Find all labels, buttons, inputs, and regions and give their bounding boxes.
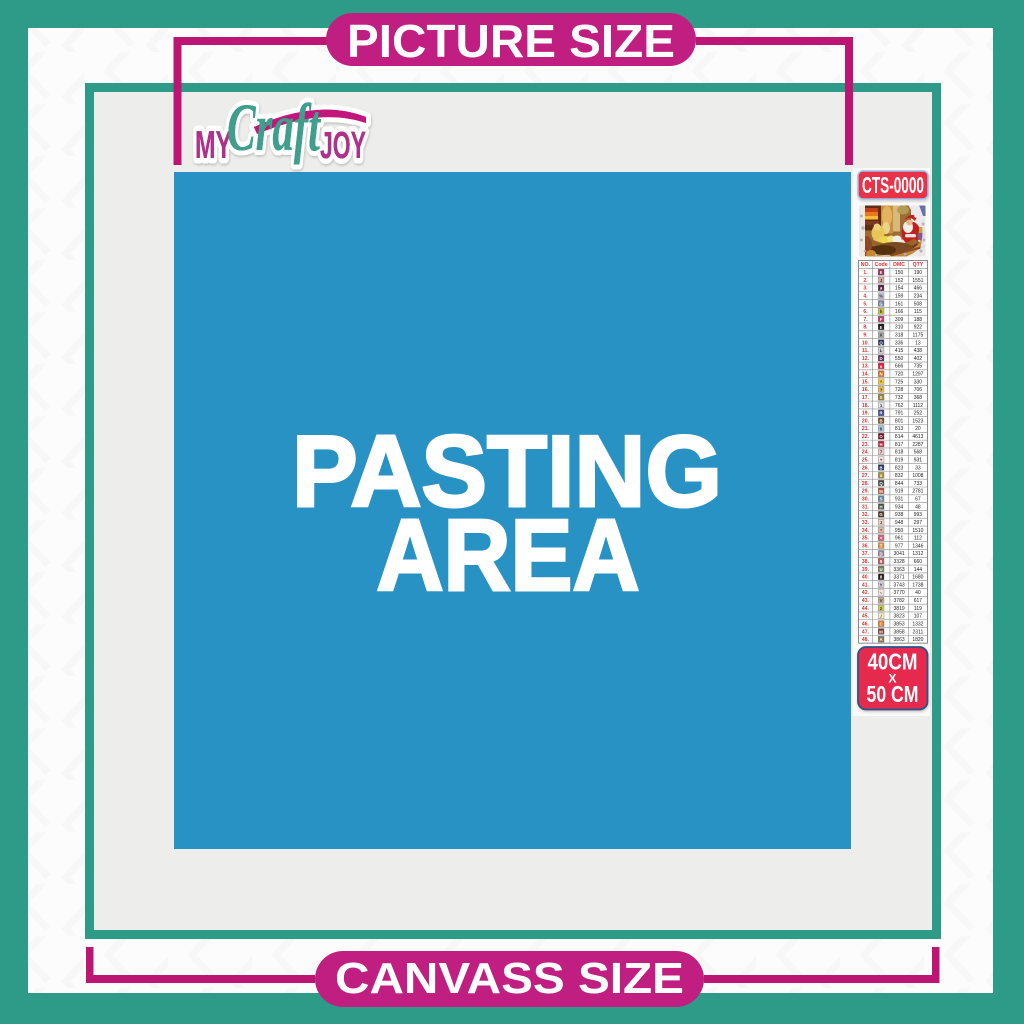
- svg-text:813: 813: [895, 426, 904, 432]
- svg-text:13.: 13.: [862, 364, 870, 370]
- svg-text:415: 415: [895, 348, 904, 354]
- svg-text:DMC: DMC: [893, 262, 905, 268]
- svg-text:814: 814: [895, 434, 904, 440]
- svg-text:438: 438: [914, 348, 923, 354]
- svg-text:934: 934: [895, 504, 904, 510]
- svg-text:42.: 42.: [862, 590, 870, 596]
- svg-text:1008: 1008: [912, 473, 923, 479]
- svg-text:16.: 16.: [862, 387, 870, 393]
- svg-text:31.: 31.: [862, 504, 870, 510]
- svg-text:5.: 5.: [863, 301, 868, 307]
- svg-text:1112: 1112: [913, 403, 924, 409]
- svg-text:1175: 1175: [913, 333, 924, 339]
- svg-text:950: 950: [895, 528, 904, 534]
- svg-text:24.: 24.: [862, 450, 870, 456]
- svg-text:3819: 3819: [894, 606, 905, 612]
- svg-text:18.: 18.: [862, 403, 870, 409]
- svg-text:919: 919: [895, 489, 904, 495]
- svg-text:3041: 3041: [894, 551, 905, 557]
- svg-text:762: 762: [895, 403, 904, 409]
- svg-text:3743: 3743: [894, 582, 905, 588]
- svg-text:40.: 40.: [862, 575, 870, 581]
- svg-text:30.: 30.: [862, 497, 870, 503]
- svg-text:1680: 1680: [912, 575, 923, 581]
- svg-text:22.: 22.: [862, 434, 870, 440]
- svg-text:1510: 1510: [912, 528, 923, 534]
- svg-text:T: T: [880, 543, 883, 548]
- svg-text:3863: 3863: [894, 637, 905, 643]
- svg-text:M: M: [879, 489, 883, 494]
- svg-text:CANVASS SIZE: CANVASS SIZE: [335, 955, 684, 1003]
- svg-text:C: C: [880, 622, 883, 627]
- svg-text:720: 720: [895, 372, 904, 378]
- svg-text:10.: 10.: [862, 340, 870, 346]
- svg-text:144: 144: [914, 567, 923, 573]
- svg-text:D: D: [880, 551, 883, 556]
- svg-text:728: 728: [895, 387, 904, 393]
- svg-text:801: 801: [895, 418, 904, 424]
- svg-text:E: E: [880, 325, 883, 330]
- svg-text:3858: 3858: [894, 629, 905, 635]
- svg-text:666: 666: [895, 364, 904, 370]
- svg-text:3371: 3371: [894, 575, 905, 581]
- svg-text:3782: 3782: [894, 598, 905, 604]
- svg-text:L: L: [880, 348, 883, 353]
- svg-text:6.: 6.: [863, 309, 868, 315]
- svg-text:25.: 25.: [862, 457, 870, 463]
- svg-text:938: 938: [895, 512, 904, 518]
- svg-text:B: B: [880, 465, 883, 470]
- svg-text:832: 832: [895, 473, 904, 479]
- svg-text:17.: 17.: [862, 395, 870, 401]
- svg-text:N: N: [880, 372, 883, 377]
- svg-text:35.: 35.: [862, 536, 870, 542]
- svg-text:?: ?: [880, 387, 883, 392]
- svg-text:107: 107: [914, 614, 923, 620]
- svg-text:Code: Code: [875, 262, 888, 268]
- svg-text:817: 817: [895, 442, 904, 448]
- svg-text:119: 119: [914, 606, 922, 612]
- svg-text:818: 818: [895, 450, 904, 456]
- svg-text:660: 660: [914, 559, 923, 565]
- svg-text:318: 318: [895, 333, 904, 339]
- svg-text:47.: 47.: [862, 629, 870, 635]
- svg-text:1297: 1297: [912, 372, 923, 378]
- svg-text:36.: 36.: [862, 543, 870, 549]
- svg-text:735: 735: [914, 364, 923, 370]
- svg-text:E: E: [880, 270, 883, 275]
- svg-text:h: h: [880, 309, 883, 314]
- svg-text:154: 154: [895, 286, 904, 292]
- svg-text:50 CM: 50 CM: [867, 681, 919, 707]
- svg-text:706: 706: [914, 387, 923, 393]
- svg-text:1551: 1551: [912, 278, 923, 284]
- svg-text:33.: 33.: [862, 520, 870, 526]
- svg-text:21.: 21.: [862, 426, 870, 432]
- svg-text:41.: 41.: [862, 582, 870, 588]
- svg-text:CTS-0000: CTS-0000: [862, 172, 924, 198]
- svg-text:Craft: Craft: [227, 89, 321, 165]
- svg-text:2.: 2.: [863, 278, 868, 284]
- svg-text:%: %: [879, 294, 883, 299]
- svg-text:823: 823: [895, 465, 904, 471]
- svg-text:2781: 2781: [912, 489, 923, 495]
- svg-text:931: 931: [914, 457, 923, 463]
- svg-text:188: 188: [914, 317, 923, 323]
- svg-text:115: 115: [914, 309, 922, 315]
- svg-text:20: 20: [915, 426, 921, 432]
- svg-text:252: 252: [914, 411, 923, 417]
- svg-text:48.: 48.: [862, 637, 870, 643]
- svg-text:7.: 7.: [863, 317, 868, 323]
- svg-text:330: 330: [914, 379, 923, 385]
- svg-text:23.: 23.: [862, 442, 870, 448]
- svg-text:368: 368: [914, 395, 923, 401]
- svg-text:40: 40: [915, 590, 921, 596]
- svg-text:15.: 15.: [862, 379, 870, 385]
- svg-text:M: M: [879, 629, 883, 634]
- svg-text:3328: 3328: [894, 559, 905, 565]
- svg-text:14.: 14.: [862, 372, 870, 378]
- svg-text:D: D: [880, 356, 883, 361]
- svg-text:733: 733: [914, 481, 923, 487]
- svg-text:1346: 1346: [912, 543, 923, 549]
- svg-text:466: 466: [914, 286, 923, 292]
- svg-text:B: B: [880, 419, 883, 424]
- svg-text:402: 402: [914, 356, 923, 362]
- svg-text:37.: 37.: [862, 551, 870, 557]
- svg-text:568: 568: [914, 450, 923, 456]
- svg-text:2311: 2311: [913, 629, 924, 635]
- svg-text:977: 977: [895, 543, 904, 549]
- svg-text:34.: 34.: [862, 528, 870, 534]
- svg-text:152: 152: [895, 278, 904, 284]
- svg-text:159: 159: [895, 293, 904, 299]
- svg-text:8.: 8.: [863, 325, 868, 331]
- svg-text:234: 234: [914, 293, 923, 299]
- svg-text:3.: 3.: [863, 286, 868, 292]
- svg-text:508: 508: [914, 301, 923, 307]
- svg-text:922: 922: [914, 325, 923, 331]
- svg-text:26.: 26.: [862, 465, 870, 471]
- svg-text:336: 336: [895, 340, 904, 346]
- svg-text:732: 732: [895, 395, 904, 401]
- svg-text:V: V: [880, 598, 883, 603]
- svg-text:o: o: [880, 364, 883, 369]
- svg-text:1523: 1523: [912, 418, 923, 424]
- svg-text:819: 819: [895, 457, 904, 463]
- svg-text:190: 190: [914, 270, 923, 276]
- svg-text:F: F: [880, 317, 883, 322]
- svg-text:67: 67: [915, 497, 921, 503]
- svg-text:3823: 3823: [894, 614, 905, 620]
- svg-text:32.: 32.: [862, 512, 870, 518]
- svg-text:725: 725: [895, 379, 904, 385]
- svg-text:1332: 1332: [912, 621, 923, 627]
- svg-text:617: 617: [914, 598, 923, 604]
- svg-text:28.: 28.: [862, 481, 870, 487]
- svg-text:1738: 1738: [912, 582, 923, 588]
- svg-text:550: 550: [895, 356, 904, 362]
- svg-text:150: 150: [895, 270, 904, 276]
- svg-text:45.: 45.: [862, 614, 870, 620]
- svg-text:12.: 12.: [862, 356, 870, 362]
- svg-text:3363: 3363: [894, 567, 905, 573]
- svg-text:112: 112: [914, 536, 922, 542]
- svg-text:297: 297: [914, 520, 923, 526]
- svg-text:29.: 29.: [862, 489, 870, 495]
- svg-text:993: 993: [914, 512, 923, 518]
- svg-text:931: 931: [895, 497, 904, 503]
- svg-text:38.: 38.: [862, 559, 870, 565]
- svg-text:4613: 4613: [912, 434, 923, 440]
- svg-text:NO.: NO.: [861, 262, 871, 268]
- svg-text:4.: 4.: [863, 293, 868, 299]
- svg-text:20.: 20.: [862, 418, 870, 424]
- svg-text:27.: 27.: [862, 473, 870, 479]
- svg-text:309: 309: [895, 317, 904, 323]
- svg-text:844: 844: [895, 481, 904, 487]
- svg-text:X: X: [880, 333, 883, 338]
- svg-text:310: 310: [895, 325, 904, 331]
- svg-text:13: 13: [915, 340, 921, 346]
- svg-text:H: H: [880, 504, 883, 509]
- svg-text:39.: 39.: [862, 567, 870, 573]
- svg-text:AREA: AREA: [377, 500, 640, 612]
- svg-text:1.: 1.: [863, 270, 868, 276]
- svg-text:1312: 1312: [912, 551, 923, 557]
- svg-text:43.: 43.: [862, 598, 870, 604]
- svg-text:19.: 19.: [862, 411, 870, 417]
- svg-text:U: U: [880, 567, 883, 572]
- svg-text:JOY: JOY: [320, 125, 366, 167]
- svg-text:44.: 44.: [862, 606, 870, 612]
- svg-text:3853: 3853: [894, 621, 905, 627]
- svg-text:S: S: [880, 497, 883, 502]
- svg-text:48: 48: [915, 504, 921, 510]
- svg-text:961: 961: [895, 536, 904, 542]
- svg-text:S: S: [880, 395, 883, 400]
- svg-text:3770: 3770: [894, 590, 905, 596]
- svg-text:2287: 2287: [912, 442, 923, 448]
- svg-text:46.: 46.: [862, 621, 870, 627]
- svg-text:33: 33: [915, 465, 921, 471]
- svg-text:A: A: [880, 637, 883, 642]
- svg-text:948: 948: [895, 520, 904, 526]
- svg-text:166: 166: [895, 309, 904, 315]
- svg-text:11.: 11.: [862, 348, 869, 354]
- svg-text:PICTURE SIZE: PICTURE SIZE: [347, 15, 675, 67]
- svg-text:161: 161: [895, 301, 904, 307]
- svg-text:791: 791: [895, 411, 904, 417]
- svg-text:1820: 1820: [912, 637, 923, 643]
- svg-text:Y: Y: [880, 583, 883, 588]
- svg-text:QTY: QTY: [913, 262, 924, 268]
- svg-text:9.: 9.: [863, 333, 868, 339]
- svg-text:H: H: [880, 442, 883, 447]
